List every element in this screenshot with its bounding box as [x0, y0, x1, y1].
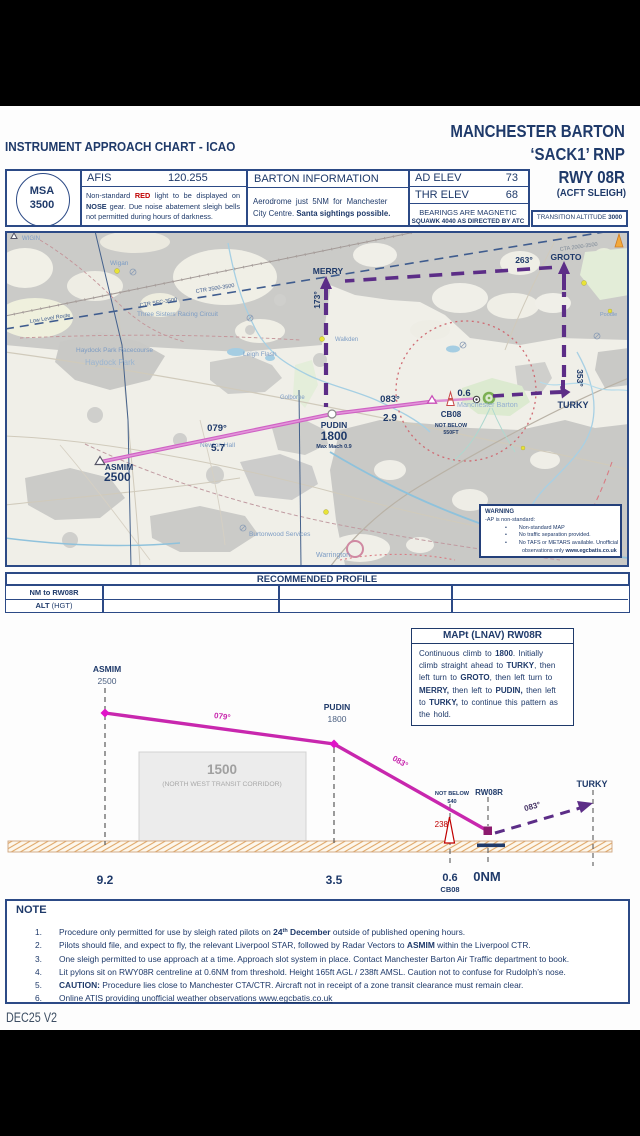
svg-text:CB08: CB08	[440, 885, 459, 894]
svg-text:550FT: 550FT	[443, 430, 459, 436]
svg-text:2500: 2500	[104, 470, 131, 484]
svg-text:0.6: 0.6	[457, 388, 470, 399]
svg-text:079°: 079°	[214, 711, 232, 722]
svg-text:Haydock Park Racecourse: Haydock Park Racecourse	[76, 347, 153, 354]
svg-text:0.6: 0.6	[442, 872, 457, 884]
svg-text:173°: 173°	[312, 291, 322, 309]
svg-text:WIGIN: WIGIN	[22, 236, 40, 242]
svg-text:1800: 1800	[328, 714, 347, 724]
svg-text:Walkden: Walkden	[335, 337, 358, 343]
svg-text:NOT BELOW: NOT BELOW	[435, 423, 467, 429]
svg-text:CB08: CB08	[441, 410, 462, 419]
svg-text:1800: 1800	[321, 429, 348, 443]
svg-text:083°: 083°	[523, 800, 541, 813]
svg-text:083°: 083°	[391, 754, 410, 770]
svg-text:3.5: 3.5	[326, 873, 343, 887]
svg-text:Leigh Flash: Leigh Flash	[243, 351, 277, 358]
svg-text:(NORTH WEST TRANSIT CORRIDOR): (NORTH WEST TRANSIT CORRIDOR)	[162, 781, 282, 788]
svg-text:TURKY: TURKY	[558, 400, 589, 410]
svg-text:TURKY: TURKY	[577, 779, 608, 789]
svg-text:5.7: 5.7	[211, 443, 225, 454]
svg-text:ASMIM: ASMIM	[93, 664, 121, 674]
svg-text:540: 540	[447, 799, 456, 805]
svg-text:Three Sisters Racing Circuit: Three Sisters Racing Circuit	[137, 311, 218, 318]
svg-text:263°: 263°	[515, 255, 533, 265]
svg-text:MERRY: MERRY	[313, 266, 344, 276]
svg-text:083°: 083°	[380, 394, 400, 405]
svg-text:Golborne: Golborne	[280, 395, 305, 401]
svg-text:PUDIN: PUDIN	[324, 702, 350, 712]
svg-text:Max Mach 0.9: Max Mach 0.9	[316, 444, 351, 450]
svg-text:Wigan: Wigan	[110, 260, 129, 267]
svg-text:079°: 079°	[207, 423, 227, 434]
svg-text:NOT BELOW: NOT BELOW	[435, 791, 470, 797]
svg-text:Poodle: Poodle	[600, 312, 617, 318]
svg-text:Burtonwood Services: Burtonwood Services	[249, 531, 311, 538]
svg-text:353°: 353°	[575, 369, 585, 387]
svg-text:Haydock Park: Haydock Park	[85, 358, 136, 367]
svg-text:2.9: 2.9	[383, 413, 397, 424]
svg-text:1500: 1500	[207, 762, 237, 777]
svg-text:0NM: 0NM	[473, 869, 500, 884]
svg-text:Warrington: Warrington	[316, 552, 350, 559]
svg-text:Manchester Barton: Manchester Barton	[457, 400, 518, 409]
svg-text:RW08R: RW08R	[475, 788, 503, 797]
svg-text:9.2: 9.2	[97, 873, 114, 887]
svg-text:GROTO: GROTO	[550, 252, 581, 262]
svg-text:238: 238	[435, 820, 449, 829]
svg-text:2500: 2500	[98, 676, 117, 686]
